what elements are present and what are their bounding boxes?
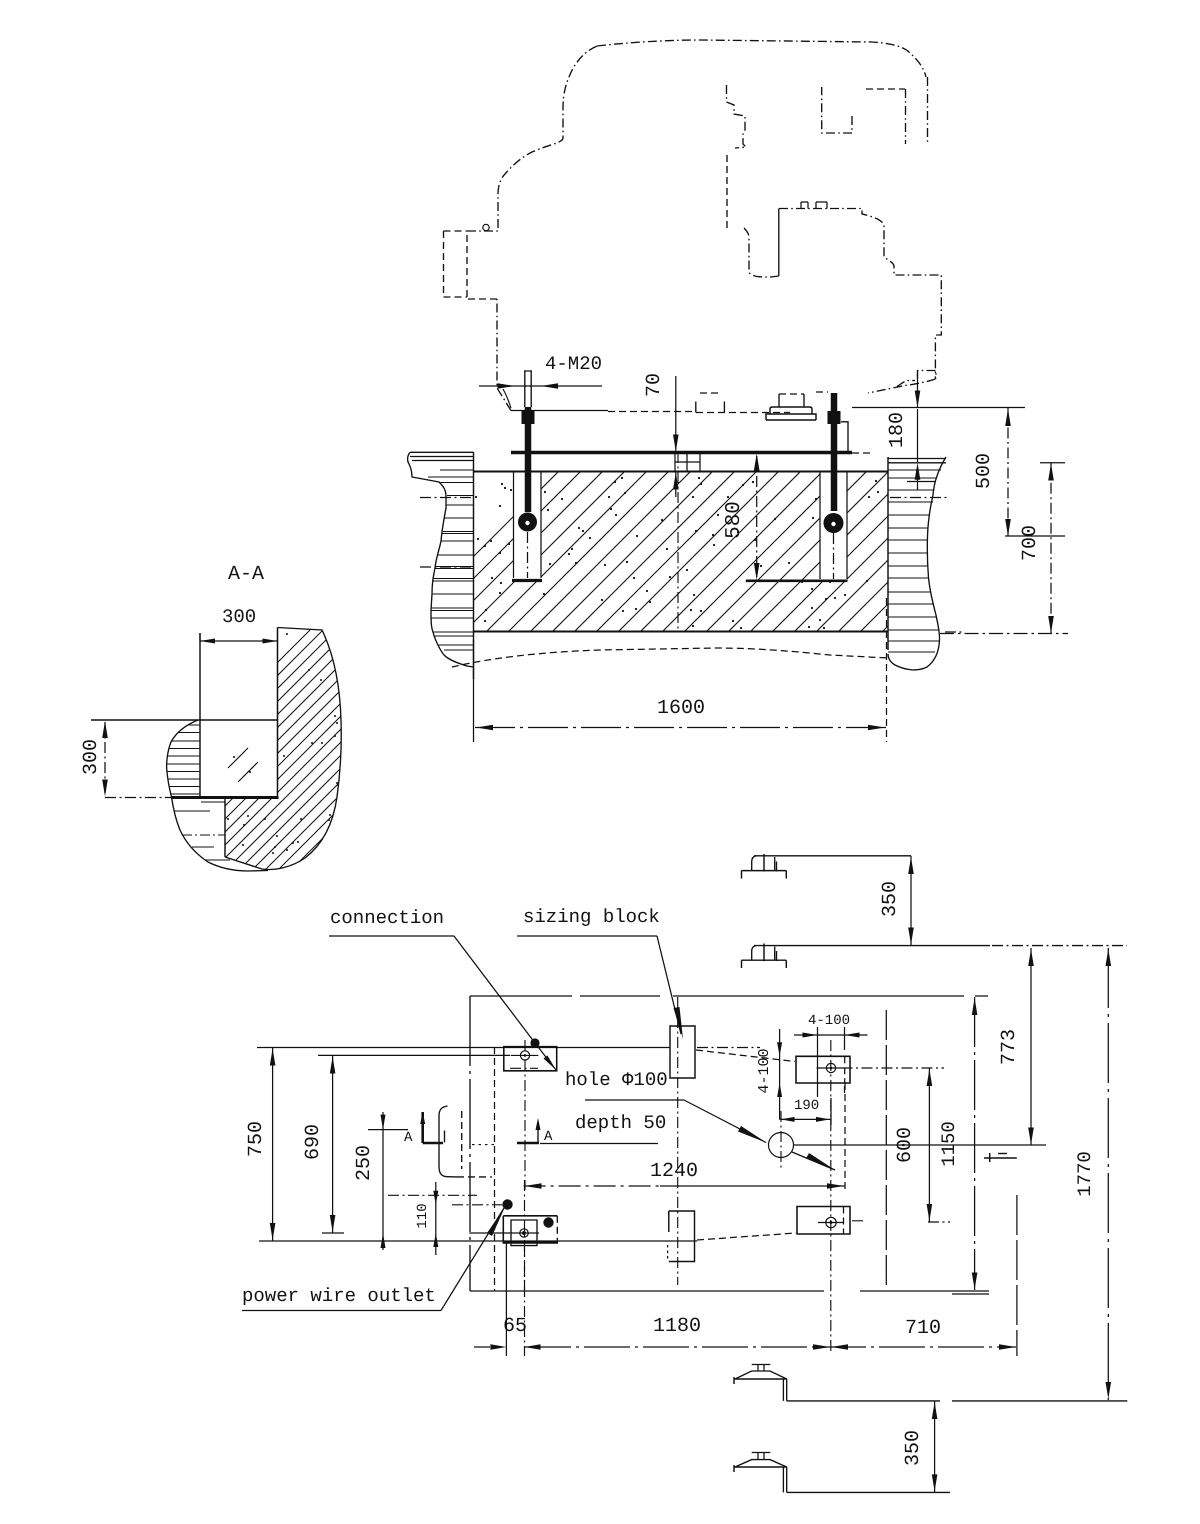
svg-text:4-100: 4-100 bbox=[808, 1013, 850, 1029]
svg-text:A: A bbox=[404, 1130, 413, 1146]
svg-text:350: 350 bbox=[879, 881, 902, 917]
svg-text:750: 750 bbox=[245, 1121, 268, 1157]
svg-text:700: 700 bbox=[1019, 525, 1042, 561]
svg-text:A-A: A-A bbox=[228, 563, 264, 586]
svg-text:350: 350 bbox=[902, 1430, 925, 1466]
svg-text:power wire outlet: power wire outlet bbox=[242, 1285, 436, 1307]
svg-text:70: 70 bbox=[643, 373, 666, 397]
svg-text:110: 110 bbox=[415, 1203, 431, 1228]
svg-text:773: 773 bbox=[998, 1029, 1021, 1065]
svg-text:690: 690 bbox=[302, 1124, 325, 1160]
svg-text:depth 50: depth 50 bbox=[575, 1112, 666, 1134]
svg-text:500: 500 bbox=[973, 453, 996, 489]
svg-text:1180: 1180 bbox=[653, 1315, 701, 1338]
svg-text:sizing block: sizing block bbox=[523, 906, 660, 928]
svg-text:A: A bbox=[544, 1129, 553, 1145]
svg-text:1240: 1240 bbox=[650, 1160, 698, 1183]
svg-text:180: 180 bbox=[886, 412, 909, 448]
svg-text:600: 600 bbox=[894, 1127, 917, 1163]
svg-text:1600: 1600 bbox=[657, 697, 705, 720]
svg-text:4-100: 4-100 bbox=[756, 1048, 773, 1093]
svg-text:710: 710 bbox=[905, 1317, 941, 1340]
svg-text:300: 300 bbox=[80, 739, 103, 775]
svg-text:1770: 1770 bbox=[1074, 1151, 1096, 1197]
svg-text:1150: 1150 bbox=[938, 1121, 960, 1167]
svg-text:250: 250 bbox=[353, 1145, 376, 1181]
svg-text:190: 190 bbox=[794, 1098, 819, 1114]
svg-text:300: 300 bbox=[222, 606, 256, 628]
svg-text:connection: connection bbox=[330, 907, 444, 929]
svg-text:580: 580 bbox=[723, 501, 746, 539]
svg-text:4-M20: 4-M20 bbox=[545, 353, 602, 375]
svg-text:hole Φ100: hole Φ100 bbox=[565, 1069, 668, 1091]
